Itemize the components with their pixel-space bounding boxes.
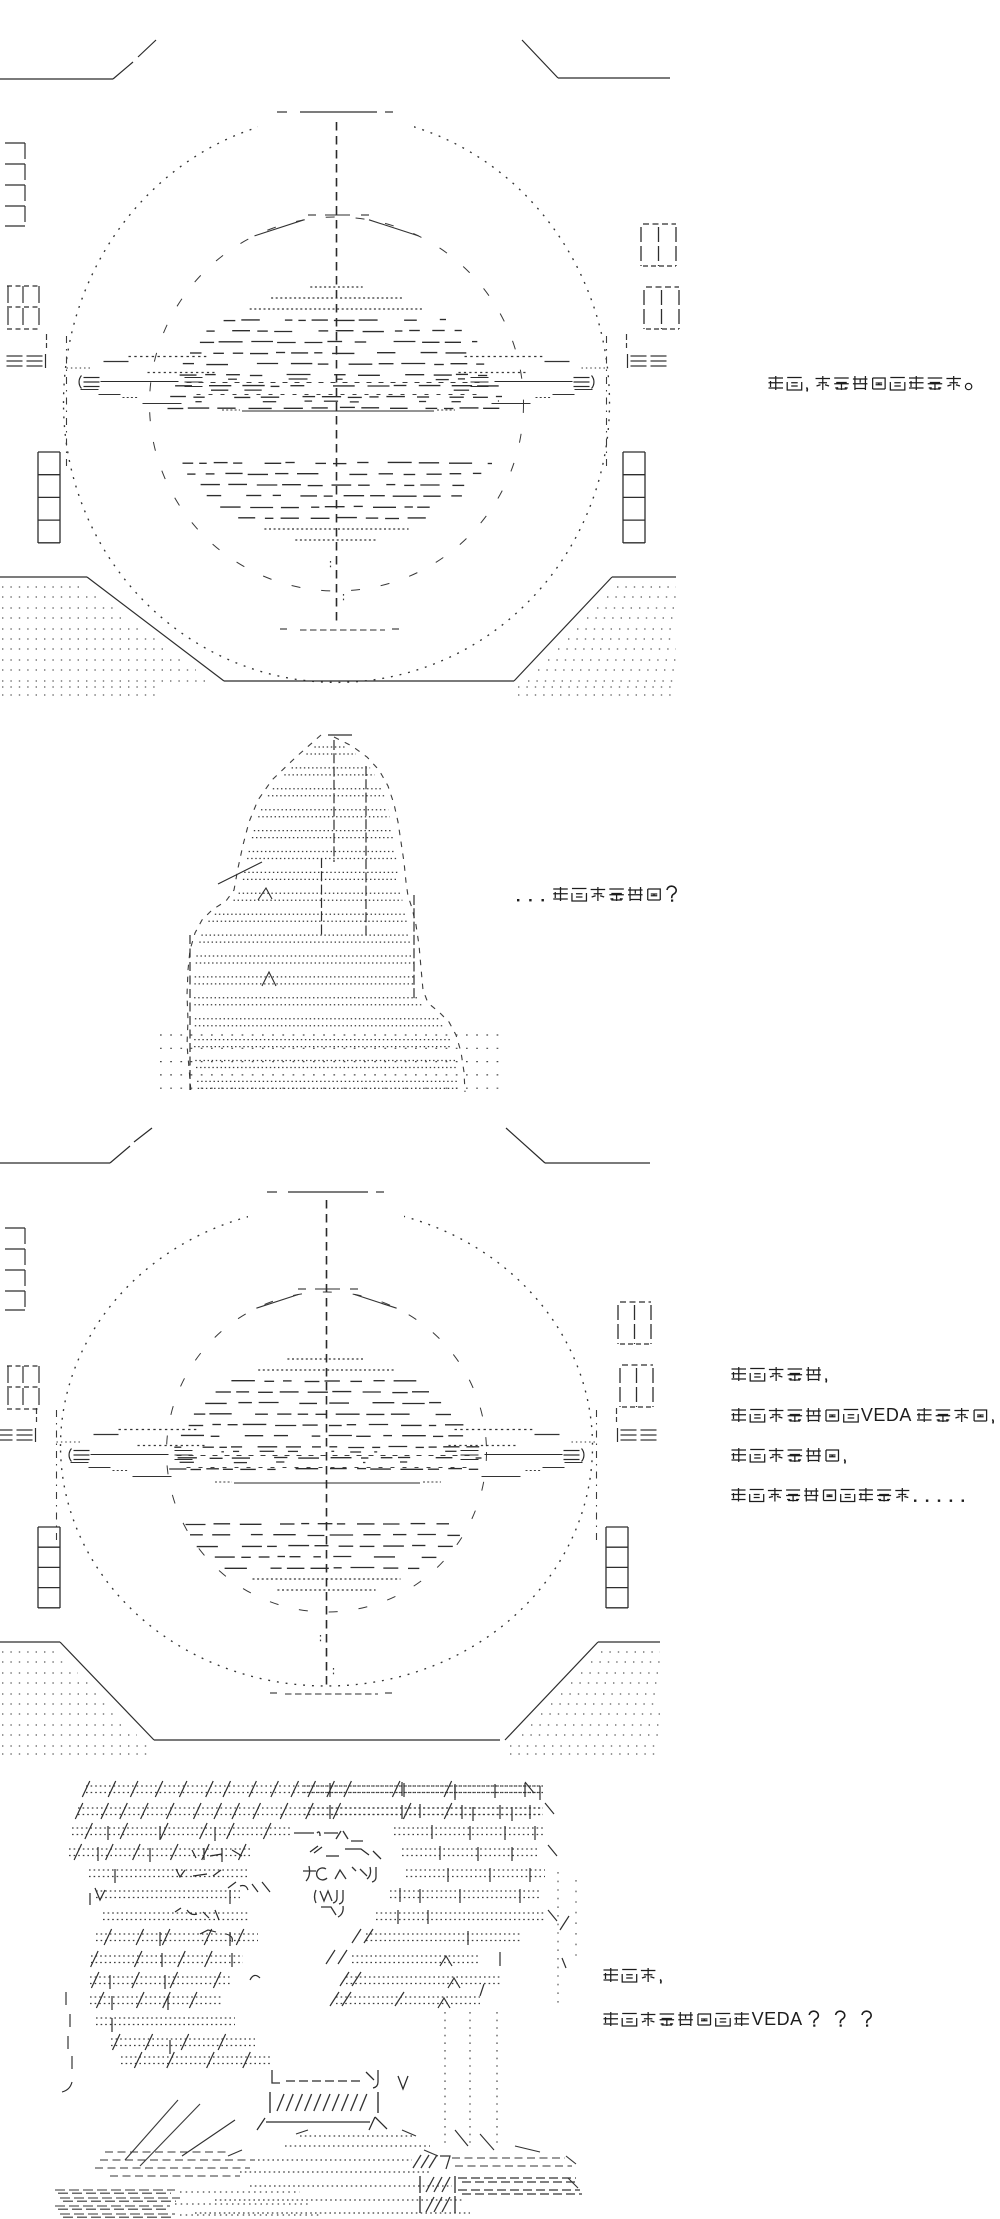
svg-text:VEDA: VEDA xyxy=(861,1405,912,1425)
svg-text:VEDA: VEDA xyxy=(752,2009,803,2029)
